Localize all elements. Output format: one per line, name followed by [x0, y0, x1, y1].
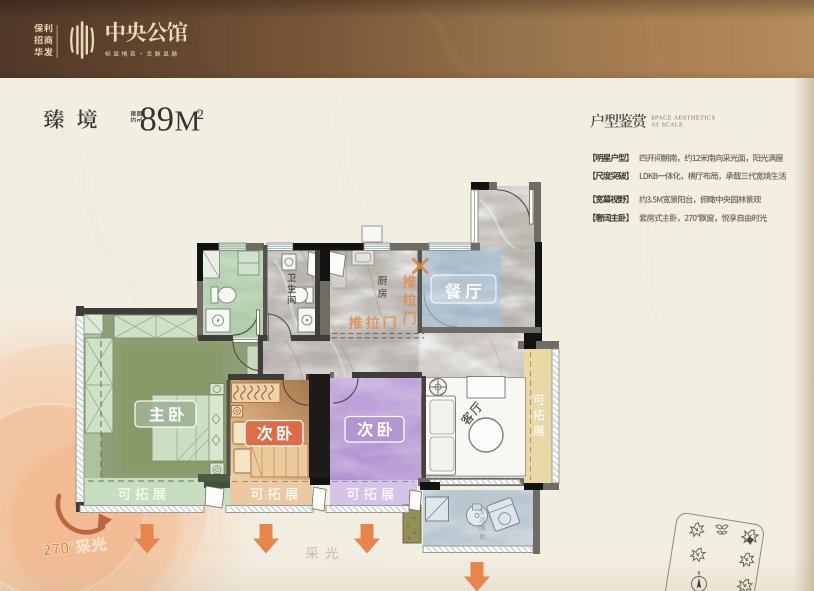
svg-text:89: 89 — [140, 101, 175, 139]
svg-text:SPACE AESTHETICS: SPACE AESTHETICS — [651, 115, 716, 122]
svg-text:AT SCALE: AT SCALE — [651, 122, 683, 129]
svg-text:2: 2 — [197, 107, 205, 123]
